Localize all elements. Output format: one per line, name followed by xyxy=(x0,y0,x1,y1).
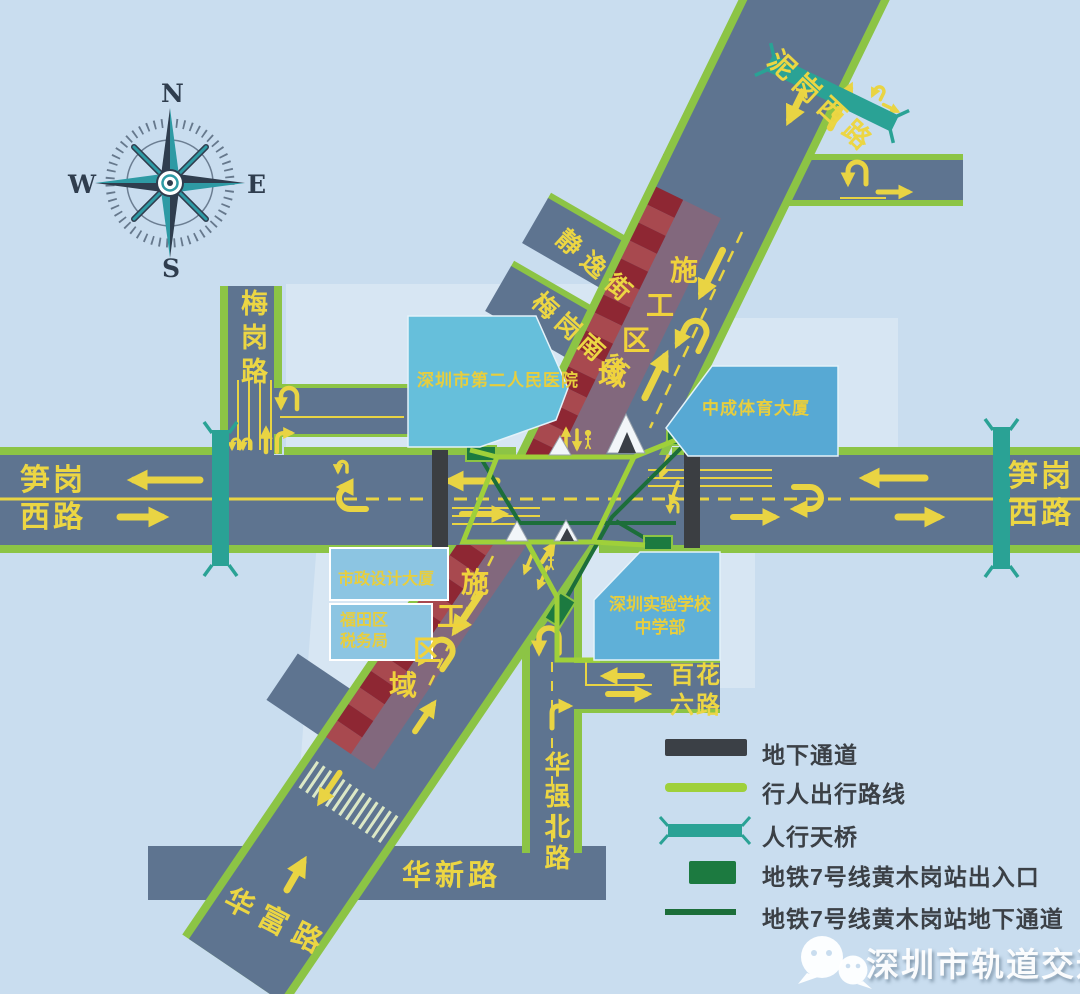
compass-rose-icon xyxy=(95,108,245,258)
building-label-school: 深圳实验学校中学部 xyxy=(596,593,724,639)
legend-label-route: 行人出行路线 xyxy=(762,775,906,809)
road-label-sungang-west-left: 笋岗西路 xyxy=(20,462,86,536)
construction-zone-lower-char: 区 xyxy=(413,629,441,669)
road-label-huaqiang-north: 华强北路 xyxy=(538,751,575,875)
legend-label-metro-passage: 地铁7号线黄木岗站地下通道 xyxy=(762,900,1064,934)
legend-swatches xyxy=(660,739,750,915)
construction-zone-lower-char: 施 xyxy=(461,561,489,601)
legend-footbridge-swatch xyxy=(660,817,750,844)
road-label-baihua-six: 百花六路 xyxy=(670,661,722,721)
construction-zone-lower-char: 工 xyxy=(437,595,465,635)
legend-metro-passage-swatch xyxy=(665,909,736,915)
legend-route-swatch xyxy=(665,783,747,792)
underpass-east xyxy=(684,450,700,548)
compass-west-label: W xyxy=(68,170,96,199)
compass-north-label: N xyxy=(161,79,184,108)
legend-label-underpass: 地下通道 xyxy=(762,736,858,770)
legend-label-footbridge: 人行天桥 xyxy=(762,818,858,852)
construction-zone-upper-char: 区 xyxy=(622,319,650,359)
legend-underpass-swatch xyxy=(665,739,747,756)
road-label-sungang-west-right: 笋岗西路 xyxy=(1008,458,1074,532)
legend-label-metro-exit: 地铁7号线黄木岗站出入口 xyxy=(762,858,1040,892)
construction-zone-upper-char: 域 xyxy=(598,354,626,394)
watermark-text: 深圳市轨道交通 xyxy=(866,938,1080,986)
building-label-futian-tax: 福田区税务局 xyxy=(340,610,388,652)
building-label-municipal-design: 市政设计大厦 xyxy=(338,565,434,589)
construction-zone-upper-char: 施 xyxy=(670,249,698,289)
road-label-huaxin: 华新路 xyxy=(402,852,501,894)
traffic-map: N E S W 泥岗西路 笋岗西路 笋岗西路 梅岗路 静逸街 梅岗南街 华强北路… xyxy=(0,0,1080,994)
compass-south-label: S xyxy=(162,254,180,283)
building-label-zhongcheng: 中成体育大厦 xyxy=(702,394,810,419)
building-label-hospital: 深圳市第二人民医院 xyxy=(417,366,579,391)
underpass-west xyxy=(432,450,448,548)
legend-exit-swatch xyxy=(689,861,736,884)
road-label-meigang: 梅岗路 xyxy=(233,289,272,391)
wechat-icon xyxy=(798,936,872,989)
construction-zone-lower-char: 域 xyxy=(389,664,417,704)
construction-zone-upper-char: 工 xyxy=(646,284,674,324)
compass-east-label: E xyxy=(247,170,266,199)
